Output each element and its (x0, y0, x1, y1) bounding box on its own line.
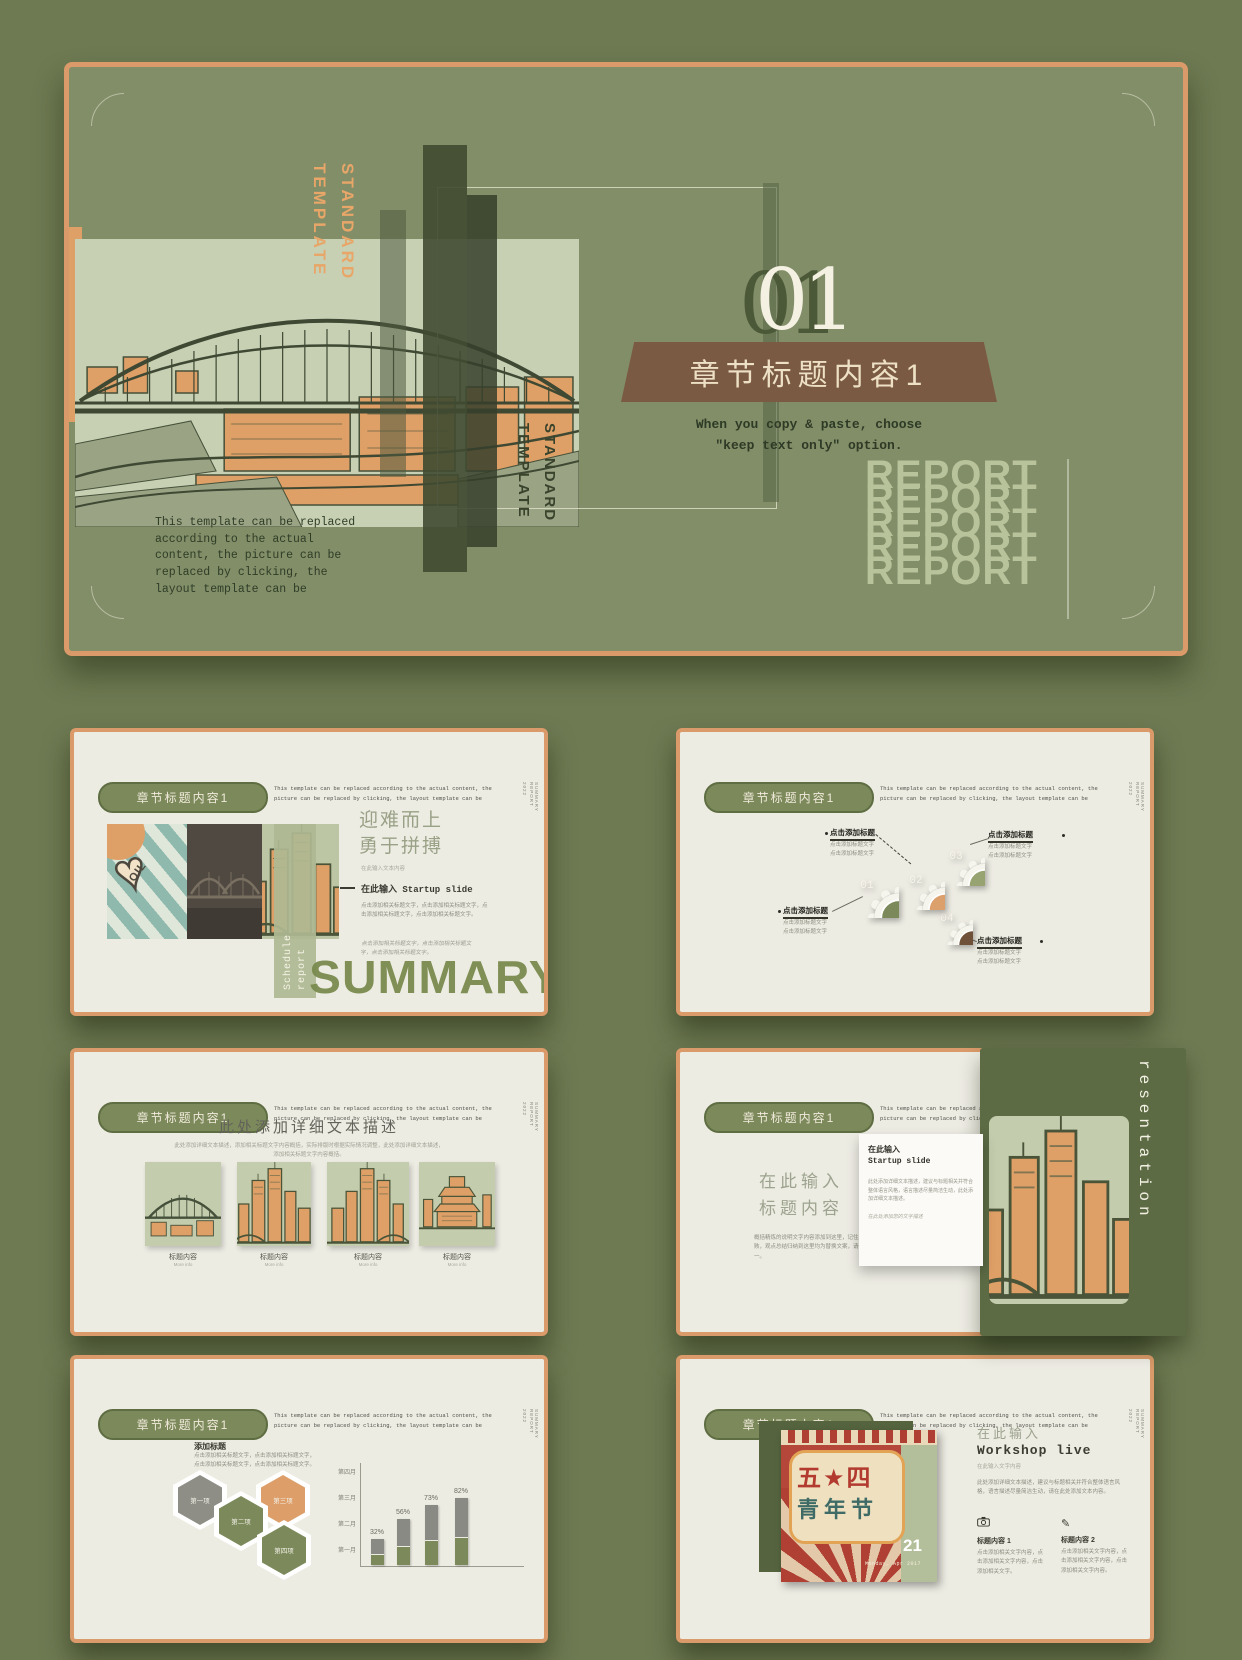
gear-02: 02 (887, 852, 945, 910)
card-paragraph: 此处添加详细文本描述，建议与标题相关并符合整体语言风格，语言描述尽量简洁生动，此… (868, 1178, 974, 1204)
gallery-title: 此处添加详细文本描述 (74, 1116, 544, 1137)
slide-workshop[interactable]: 章节标题内容1 This template can be replaced ac… (676, 1355, 1154, 1643)
stat-bar (455, 1498, 468, 1565)
hero-paragraph: This template can be replaced according … (155, 515, 373, 598)
chart-y-label-1: 第四月 (320, 1467, 356, 1476)
gallery-caption-sub-3: More info (327, 1262, 409, 1267)
card-title: 在此输入 Startup slide (868, 1144, 974, 1168)
bar-chart: 第四月 第三月 第二月 第一月 32% 56% 73% 82% (320, 1455, 532, 1569)
stats-paragraph: 点击添加相关标题文字，点击添加相关标题文字，点击添加相关标题文字，点击添加相关标… (194, 1452, 319, 1471)
col-title: 标题内容 1 (977, 1536, 1043, 1546)
gallery-caption-4: 标题内容 (419, 1252, 495, 1262)
slide-side-mark: 2022SUMMARY REPORT (522, 1409, 539, 1455)
col-title: 标题内容 2 (1061, 1535, 1131, 1545)
hero-caption: When you copy & paste, choose "keep text… (629, 415, 989, 457)
poster-day: 21 (903, 1536, 922, 1556)
chart-y-label-4: 第一月 (320, 1545, 356, 1554)
stat-bar-group: 82% (454, 1488, 468, 1565)
stat-bar-green (425, 1540, 438, 1565)
hero-slide[interactable]: STANDARD TEMPLATE STANDARD TEMPLATE 01 0… (64, 62, 1188, 656)
gear-label-3: 点击添加标题 点击添加标题文字 点击添加标题文字 (783, 900, 859, 938)
corner-arc-top-left (91, 93, 157, 159)
side-title-dark-template: TEMPLATE (515, 423, 532, 519)
workshop-title: Workshop live (977, 1443, 1091, 1458)
stat-bar-group: 32% (370, 1529, 384, 1565)
pen-icon: ✎ (1061, 1518, 1070, 1530)
poster-side-band (901, 1430, 937, 1582)
slide-title-pill: 章节标题内容1 (704, 782, 874, 813)
corner-arc-bottom-left (91, 553, 157, 619)
summary-heading: 迎难而上 勇于拼搏 (359, 808, 443, 859)
gallery-caption-1: 标题内容 (145, 1252, 221, 1262)
slide-note: This template can be replaced according … (274, 1411, 510, 1432)
workshop-paragraph: 此处添加详细文本描述，建议与标题相关并符合整体语言风格，语言描述尽量简洁生动，请… (977, 1479, 1127, 1498)
col-text: 点击添加相关文字内容，点击添加相关文字内容，点击添加相关文字。 (977, 1549, 1043, 1577)
slide-side-mark: 2022SUMMARY REPORT (522, 782, 539, 828)
gallery-image-1 (145, 1162, 221, 1246)
slide-title-pill: 章节标题内容1 (98, 1409, 268, 1440)
poster-stripe-border (781, 1430, 937, 1445)
summary-big-word: SUMMARY (309, 950, 548, 1004)
youth-day-poster: 五★四 青年节 21 Monday, Apr 2017 (781, 1430, 937, 1582)
slide-note: This template can be replaced according … (274, 784, 510, 805)
presentation-vertical-label: resentation (1135, 1060, 1153, 1328)
stat-bar-group: 56% (396, 1509, 410, 1565)
poster-title-row2: 青年节 (797, 1492, 878, 1524)
slide-stats[interactable]: 章节标题内容1 This template can be replaced ac… (70, 1355, 548, 1643)
poster-date: Monday, Apr 2017 (865, 1561, 921, 1567)
chart-y-label-2: 第三月 (320, 1493, 356, 1502)
slide-title-pill: 章节标题内容1 (704, 1102, 874, 1133)
report-label: report (297, 948, 308, 990)
collage-bridge-image (187, 824, 262, 939)
chapter-banner-title: 章节标题内容1 (690, 350, 929, 394)
gallery-image-3 (327, 1162, 409, 1246)
stat-bar-green (397, 1546, 410, 1565)
gear-label-2: 点击添加标题 点击添加标题文字 点击添加标题文字 (988, 824, 1064, 862)
stat-bar-green (455, 1537, 468, 1565)
stat-bar-group: 73% (424, 1495, 438, 1565)
stat-bar (425, 1505, 438, 1565)
stats-heading: 添加标题 (194, 1441, 226, 1452)
slide-gallery[interactable]: 章节标题内容1 This template can be replaced ac… (70, 1048, 548, 1336)
chapter-banner: 章节标题内容1 (621, 342, 997, 402)
slide-title-pill: 章节标题内容1 (98, 782, 268, 813)
startup-card: 在此输入 Startup slide 此处添加详细文本描述，建议与标题相关并符合… (859, 1134, 983, 1266)
chart-y-axis (360, 1463, 361, 1567)
stat-bar (371, 1539, 384, 1565)
gear-label-4: 点击添加标题 点击添加标题文字 点击添加标题文字 (977, 930, 1049, 968)
summary-lead: 在此输入文本内容 (361, 865, 405, 874)
report-word-stack: REPORT REPORT REPORT REPORT REPORT (865, 463, 1038, 583)
chart-y-label-3: 第二月 (320, 1519, 356, 1528)
slide-side-mark: 2022SUMMARY REPORT (1128, 782, 1145, 828)
workshop-intro: 在此输入 (977, 1423, 1041, 1442)
collage-oil-image: ♥ OIL (107, 824, 187, 939)
camera-icon (977, 1516, 990, 1527)
side-title-orange-standard: STANDARD (337, 163, 357, 281)
side-title-orange-template: TEMPLATE (309, 163, 329, 277)
side-title-dark-standard: STANDARD (541, 423, 558, 522)
gallery-caption-sub-1: More info (145, 1262, 221, 1267)
corner-arc-bottom-right (1089, 553, 1155, 619)
corner-arc-top-right (1089, 93, 1155, 159)
slide-gears[interactable]: 章节标题内容1 This template can be replaced ac… (676, 728, 1154, 1016)
slide-summary[interactable]: 章节标题内容1 This template can be replaced ac… (70, 728, 548, 1016)
gallery-caption-sub-2: More info (237, 1262, 311, 1267)
gallery-caption-2: 标题内容 (237, 1252, 311, 1262)
chart-x-axis (360, 1566, 524, 1567)
deco-bar (380, 210, 406, 477)
startup-big-title: 在此输入 标题内容 (759, 1168, 843, 1222)
subtitle-dash (340, 887, 355, 889)
summary-subtitle: 在此输入 Startup slide (361, 882, 473, 895)
gallery-subtitle: 此处添加详细文本描述，添加相关标题文字内容概括，实际排版时根据实际情况调整，此处… (74, 1142, 544, 1161)
workshop-col-1: 标题内容 1 点击添加相关文字内容，点击添加相关文字内容，点击添加相关文字。 (977, 1514, 1043, 1577)
deco-bar (467, 195, 497, 547)
stat-bar-green (371, 1554, 384, 1565)
slide-startup[interactable]: 章节标题内容1 This template can be replaced ac… (676, 1048, 1154, 1336)
slide-side-mark: 2022SUMMARY REPORT (1128, 1409, 1145, 1455)
workshop-lead: 在此输入文字内容 (977, 1463, 1021, 1472)
slide-note: This template can be replaced according … (880, 784, 1116, 805)
deco-bar (423, 145, 467, 572)
gallery-image-2 (237, 1162, 311, 1246)
card-note: 在此处添加您的文字描述 (867, 1213, 974, 1222)
panel-city-image (989, 1116, 1129, 1304)
poster-title-row1: 五★四 (797, 1458, 873, 1493)
summary-para1: 点击添加相关标题文字，点击添加相关标题文字，点击添加相关标题文字，点击添加相关标… (361, 902, 489, 921)
col-text: 点击添加相关文字内容，点击添加相关文字内容，点击添加相关文字内容。 (1061, 1548, 1131, 1576)
gallery-image-4 (419, 1162, 495, 1246)
schedule-label: Schedule (283, 934, 294, 990)
deco-vline (1067, 459, 1069, 619)
gear-label-1: 点击添加标题 点击添加标题文字 点击添加标题文字 (830, 822, 910, 860)
stat-bar (397, 1519, 410, 1565)
gallery-caption-sub-4: More info (419, 1262, 495, 1267)
workshop-col-2: ✎ 标题内容 2 点击添加相关文字内容，点击添加相关文字内容，点击添加相关文字内… (1061, 1514, 1131, 1576)
gallery-caption-3: 标题内容 (327, 1252, 409, 1262)
